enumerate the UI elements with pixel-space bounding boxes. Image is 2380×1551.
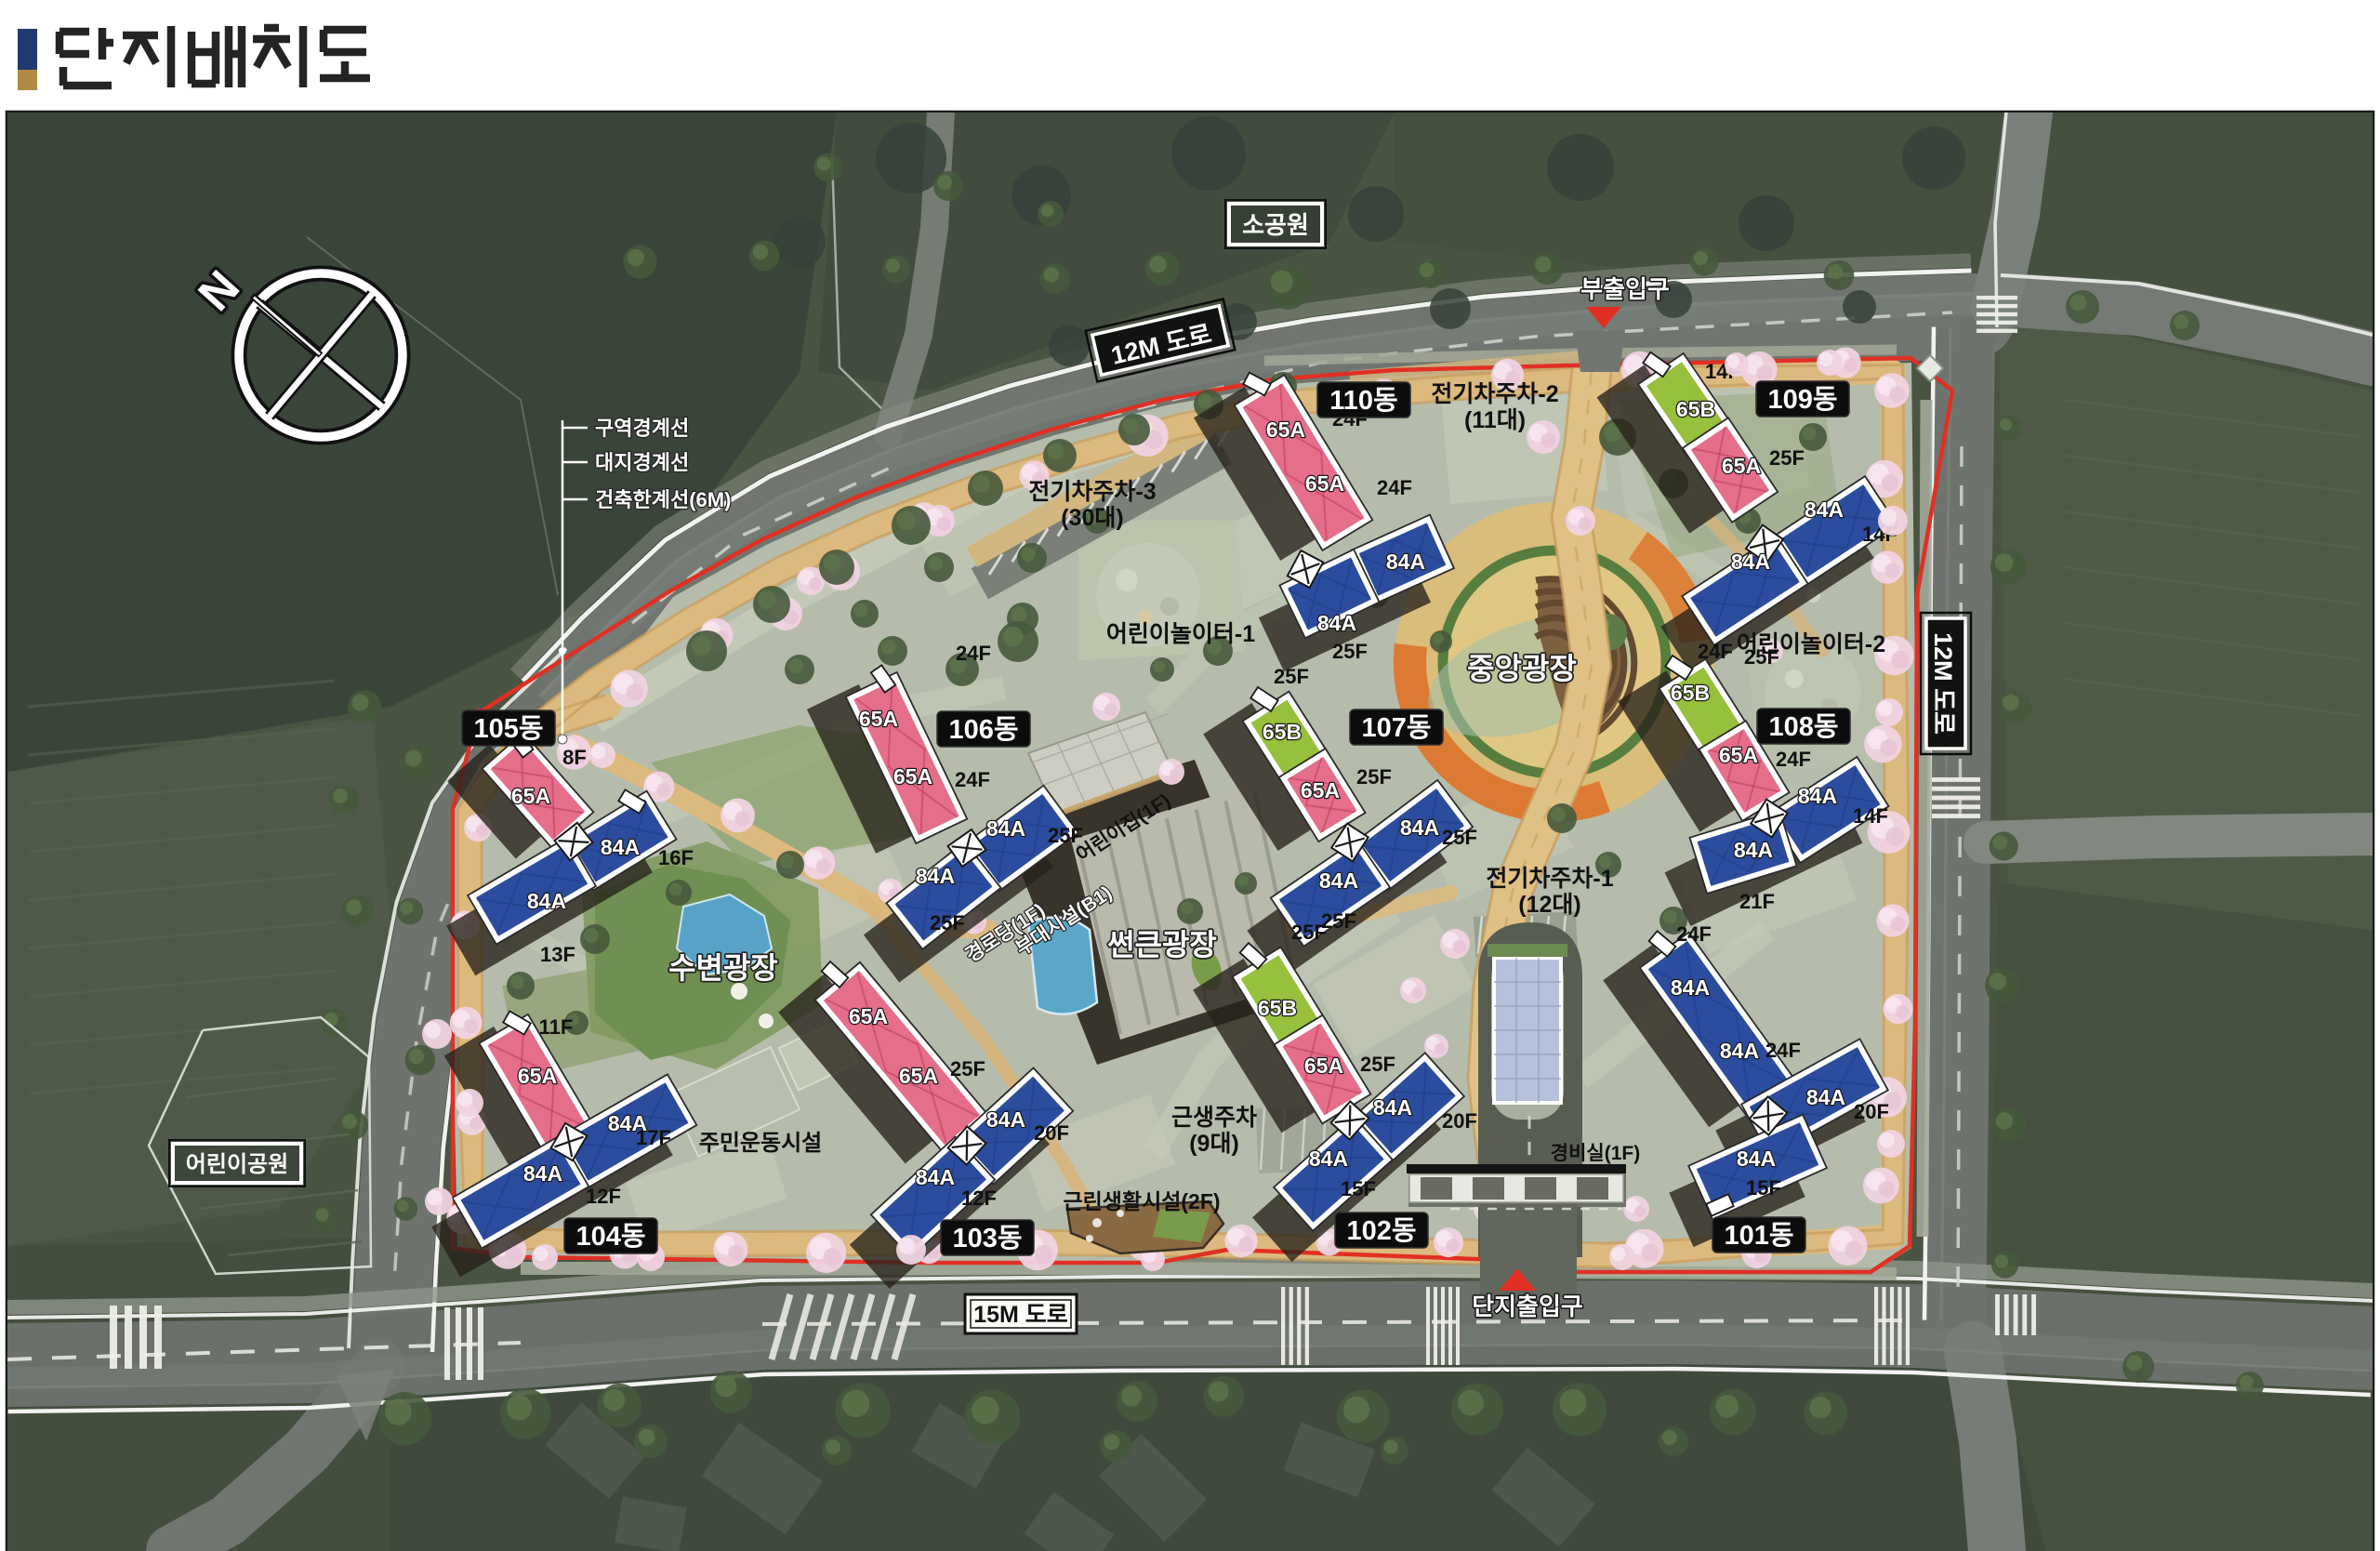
svg-text:84A: 84A — [1734, 838, 1773, 862]
svg-text:12M 도로: 12M 도로 — [1929, 632, 1957, 735]
svg-text:25F: 25F — [1360, 1053, 1395, 1076]
svg-text:25F: 25F — [1332, 640, 1368, 663]
svg-text:84A: 84A — [916, 864, 955, 888]
svg-text:경비실(1F): 경비실(1F) — [1551, 1143, 1640, 1164]
svg-text:15F: 15F — [1341, 1177, 1376, 1200]
svg-text:65B: 65B — [1676, 397, 1715, 421]
svg-text:21F: 21F — [1739, 890, 1775, 913]
svg-text:전기차주차-1: 전기차주차-1 — [1486, 866, 1613, 892]
svg-text:24F: 24F — [955, 768, 990, 791]
svg-text:25F: 25F — [950, 1057, 985, 1080]
svg-text:어린이놀이터-1: 어린이놀이터-1 — [1106, 621, 1255, 647]
svg-text:84A: 84A — [1373, 1095, 1412, 1120]
svg-text:106동: 106동 — [948, 715, 1018, 745]
svg-text:65A: 65A — [859, 707, 898, 731]
svg-text:65A: 65A — [1722, 454, 1761, 478]
svg-text:전기차주차-3: 전기차주차-3 — [1028, 479, 1156, 505]
svg-text:65B: 65B — [1671, 681, 1710, 705]
svg-text:84A: 84A — [523, 1161, 562, 1186]
svg-text:주민운동시설: 주민운동시설 — [699, 1131, 822, 1156]
svg-text:110동: 110동 — [1329, 386, 1397, 416]
svg-text:12F: 12F — [586, 1185, 621, 1208]
svg-text:구역경계선: 구역경계선 — [595, 417, 689, 440]
svg-text:8F: 8F — [562, 746, 587, 769]
svg-text:어린이놀이터-2: 어린이놀이터-2 — [1737, 631, 1885, 657]
svg-text:(11대): (11대) — [1464, 407, 1526, 433]
svg-text:84A: 84A — [916, 1165, 955, 1189]
svg-text:24F: 24F — [956, 642, 991, 665]
svg-text:13F: 13F — [540, 943, 575, 966]
svg-text:104동: 104동 — [575, 1222, 645, 1252]
svg-text:대지경계선: 대지경계선 — [595, 451, 689, 474]
svg-text:84A: 84A — [1737, 1147, 1776, 1171]
svg-text:20F: 20F — [1442, 1109, 1477, 1133]
svg-text:(9대): (9대) — [1189, 1131, 1239, 1157]
svg-text:썬큰광장: 썬큰광장 — [1107, 928, 1217, 961]
svg-text:65A: 65A — [1304, 1054, 1343, 1078]
svg-text:부출입구: 부출입구 — [1580, 275, 1670, 303]
svg-text:단지출입구: 단지출입구 — [1472, 1292, 1583, 1320]
svg-text:65A: 65A — [849, 1004, 888, 1028]
svg-text:65B: 65B — [1263, 720, 1302, 744]
svg-text:84A: 84A — [986, 816, 1025, 841]
svg-text:25F: 25F — [1048, 824, 1083, 847]
svg-text:16F: 16F — [658, 846, 694, 869]
svg-text:102동: 102동 — [1346, 1216, 1416, 1246]
svg-text:20F: 20F — [1034, 1121, 1069, 1145]
svg-text:25F: 25F — [1769, 446, 1805, 470]
svg-text:84A: 84A — [1805, 497, 1844, 522]
svg-text:24F: 24F — [1776, 748, 1811, 771]
svg-text:84A: 84A — [1319, 868, 1358, 893]
svg-text:20F: 20F — [1854, 1100, 1889, 1123]
svg-text:중앙광장: 중앙광장 — [1467, 652, 1577, 685]
svg-text:25F: 25F — [1442, 826, 1477, 849]
svg-text:84A: 84A — [986, 1107, 1025, 1132]
svg-text:17F: 17F — [636, 1126, 671, 1149]
svg-text:(12대): (12대) — [1518, 892, 1580, 918]
svg-text:전기차주차-2: 전기차주차-2 — [1431, 381, 1558, 407]
svg-text:65B: 65B — [1258, 996, 1297, 1020]
svg-text:84A: 84A — [1317, 611, 1356, 635]
svg-text:84A: 84A — [1386, 550, 1425, 574]
svg-text:107동: 107동 — [1361, 713, 1431, 743]
svg-text:25F: 25F — [1291, 921, 1327, 944]
svg-text:14F: 14F — [1853, 804, 1888, 828]
svg-text:15M 도로: 15M 도로 — [973, 1302, 1068, 1328]
svg-text:84A: 84A — [1309, 1147, 1348, 1171]
svg-text:65A: 65A — [518, 1064, 557, 1088]
svg-text:24F: 24F — [1765, 1039, 1801, 1062]
svg-text:105동: 105동 — [473, 714, 543, 744]
svg-text:건축한계선(6M): 건축한계선(6M) — [595, 488, 731, 511]
svg-text:65A: 65A — [1266, 418, 1305, 442]
svg-text:15F: 15F — [1746, 1176, 1781, 1200]
svg-text:84A: 84A — [1671, 975, 1710, 1000]
svg-text:수변광장: 수변광장 — [668, 951, 778, 985]
svg-text:(30대): (30대) — [1061, 505, 1123, 531]
svg-text:84A: 84A — [1400, 815, 1439, 840]
svg-text:24F: 24F — [1698, 640, 1733, 663]
svg-text:25F: 25F — [1274, 665, 1309, 688]
svg-text:65A: 65A — [899, 1064, 938, 1088]
svg-text:25F: 25F — [1356, 765, 1392, 789]
svg-text:84A: 84A — [1798, 784, 1837, 808]
svg-text:65A: 65A — [511, 784, 550, 808]
svg-text:84A: 84A — [527, 889, 566, 913]
svg-text:84A: 84A — [1806, 1085, 1845, 1109]
svg-text:84A: 84A — [1720, 1039, 1759, 1063]
svg-text:65A: 65A — [893, 764, 932, 789]
svg-text:84A: 84A — [601, 835, 640, 859]
svg-text:근생주차: 근생주차 — [1171, 1105, 1257, 1131]
svg-text:소공원: 소공원 — [1242, 211, 1309, 239]
svg-text:24F: 24F — [1377, 476, 1412, 499]
svg-text:24F: 24F — [1676, 922, 1712, 946]
svg-text:108동: 108동 — [1768, 712, 1838, 742]
svg-text:84A: 84A — [1731, 550, 1770, 574]
svg-text:101동: 101동 — [1724, 1221, 1793, 1251]
svg-text:65A: 65A — [1719, 743, 1758, 767]
svg-text:근린생활시설(2F): 근린생활시설(2F) — [1063, 1189, 1220, 1213]
svg-text:65A: 65A — [1305, 471, 1344, 496]
svg-text:12F: 12F — [961, 1186, 997, 1210]
svg-text:25F: 25F — [930, 911, 965, 935]
svg-text:어린이공원: 어린이공원 — [186, 1152, 288, 1177]
svg-text:65A: 65A — [1301, 778, 1340, 802]
svg-text:103동: 103동 — [952, 1224, 1022, 1253]
svg-text:11F: 11F — [539, 1015, 574, 1039]
svg-text:109동: 109동 — [1767, 385, 1837, 415]
